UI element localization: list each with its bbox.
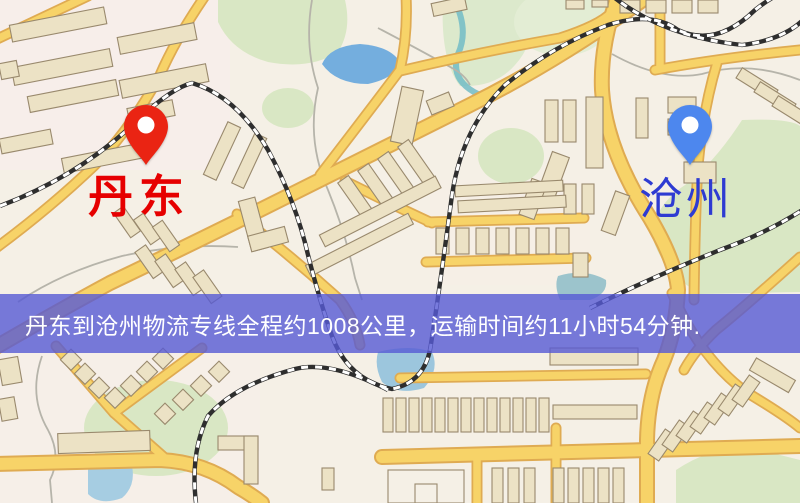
destination-pin-hole [682, 117, 699, 134]
origin-pin-shape [124, 105, 168, 165]
destination-pin-icon[interactable] [667, 103, 711, 167]
destination-pin-shape [668, 105, 712, 165]
map-canvas[interactable] [0, 0, 800, 503]
origin-pin-hole [138, 117, 155, 134]
route-info-text: 丹东到沧州物流专线全程约1008公里，运输时间约11小时54分钟. [0, 307, 701, 341]
origin-pin-icon[interactable] [124, 103, 168, 167]
map-widget: 丹东 沧州 丹东到沧州物流专线全程约1008公里，运输时间约11小时54分钟. [0, 0, 800, 503]
route-info-banner: 丹东到沧州物流专线全程约1008公里，运输时间约11小时54分钟. [0, 294, 800, 353]
origin-city-label: 丹东 [88, 174, 190, 219]
destination-city-label: 沧州 [639, 178, 733, 222]
